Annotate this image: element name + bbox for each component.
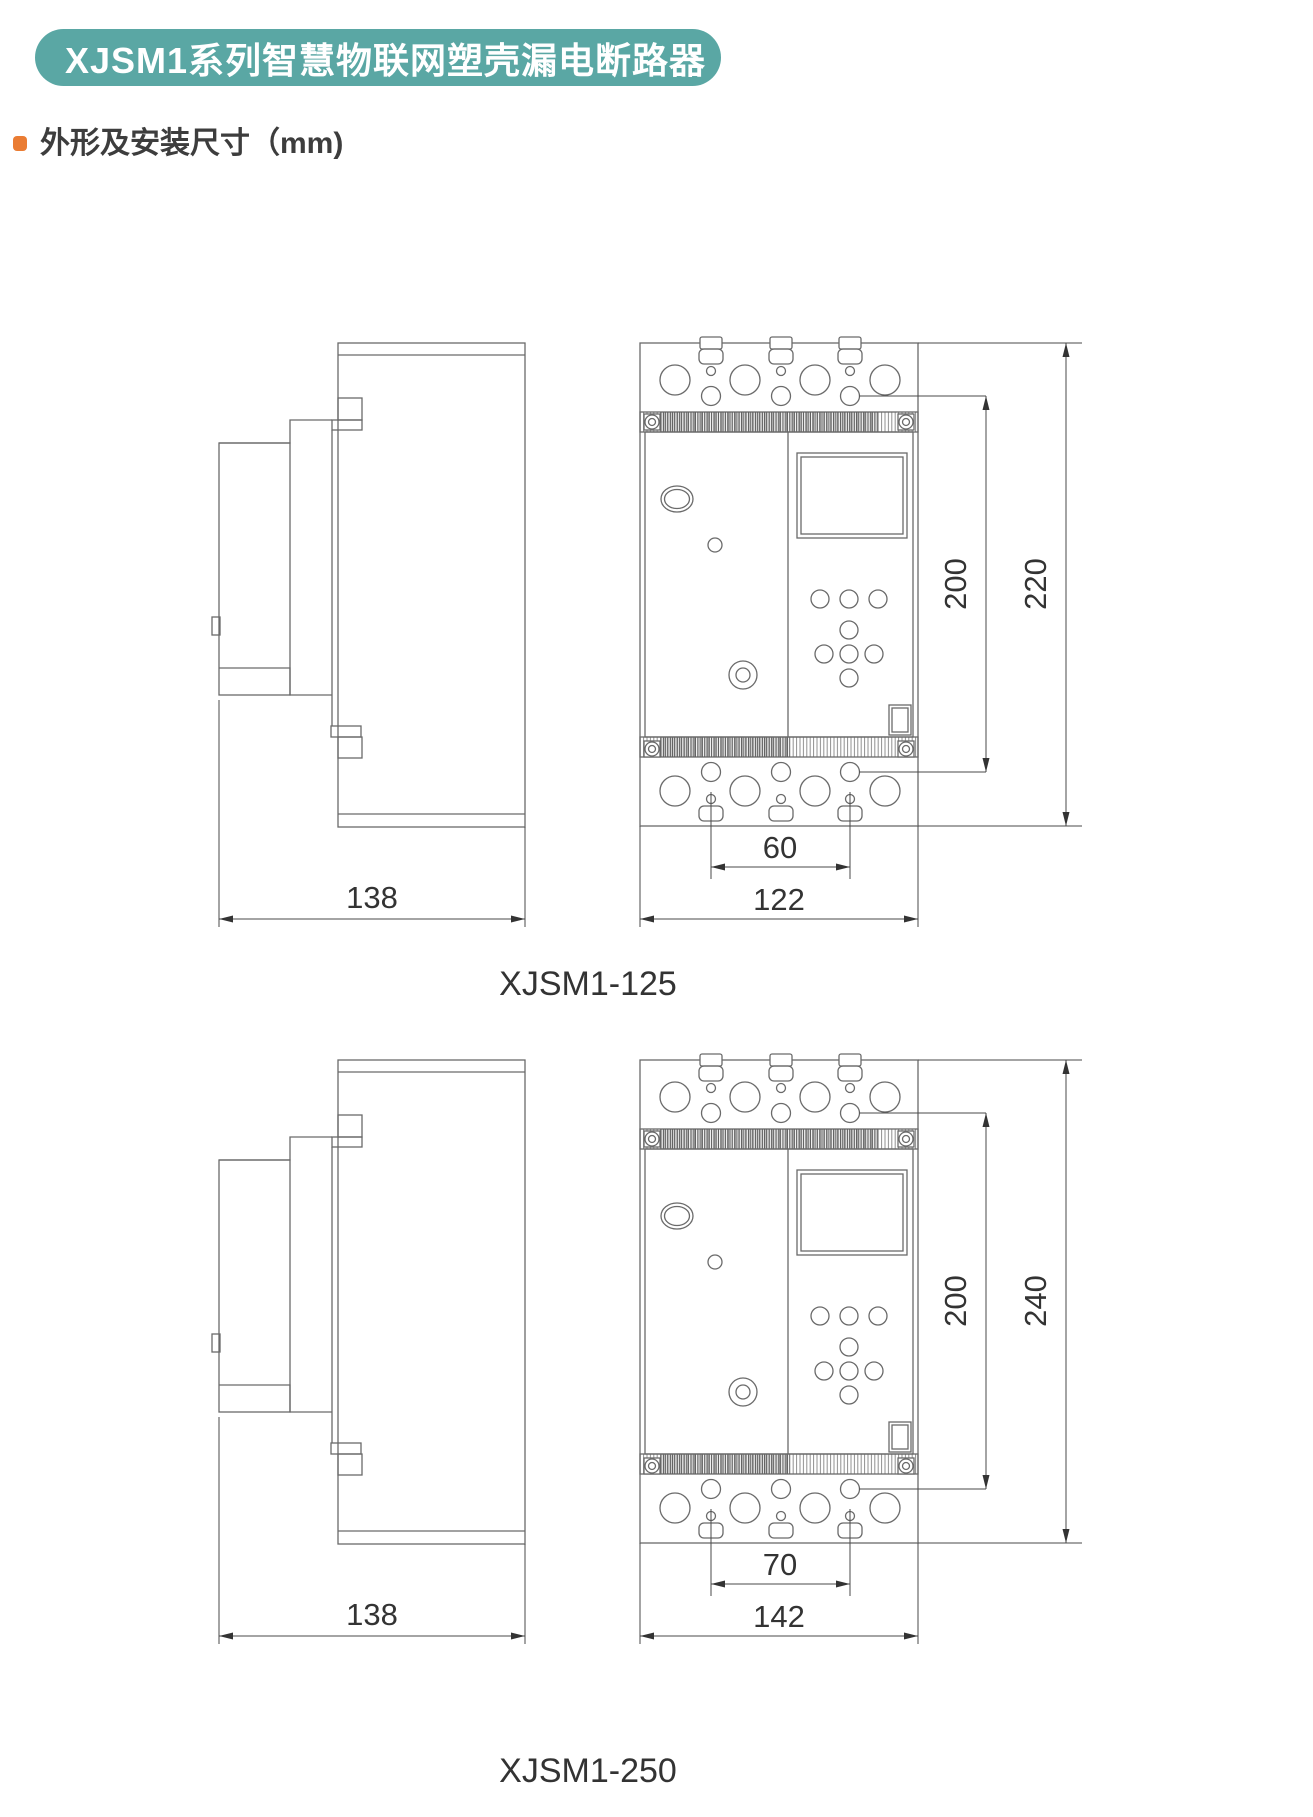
dim-body-height-1: 220 <box>1018 558 1053 610</box>
xjsm1-250-drawing: 138 70 142 200 240 XJSM1-250 <box>212 1054 1082 1790</box>
figure-caption-2: XJSM1-250 <box>499 1752 677 1790</box>
dim-mount-height-1: 200 <box>938 558 973 610</box>
dim-hole-spacing-1: 60 <box>763 830 797 865</box>
dim-side-width-2: 138 <box>346 1597 398 1632</box>
xjsm1-125-drawing: 138 60 122 200 220 XJSM1-125 <box>212 337 1082 1003</box>
dim-hole-spacing-2: 70 <box>763 1547 797 1582</box>
dim-body-height-2: 240 <box>1018 1275 1053 1327</box>
catalog-page: XJSM1系列智慧物联网塑壳漏电断路器 外形及安装尺寸（mm) <box>0 0 1313 1817</box>
figure-caption-1: XJSM1-125 <box>499 965 677 1003</box>
dim-side-width-1: 138 <box>346 880 398 915</box>
dim-mount-height-2: 200 <box>938 1275 973 1327</box>
dim-body-width-1: 122 <box>753 882 805 917</box>
dimension-drawings: 138 60 122 200 220 XJSM1-125 138 70 142 … <box>0 0 1313 1817</box>
dim-body-width-2: 142 <box>753 1599 805 1634</box>
